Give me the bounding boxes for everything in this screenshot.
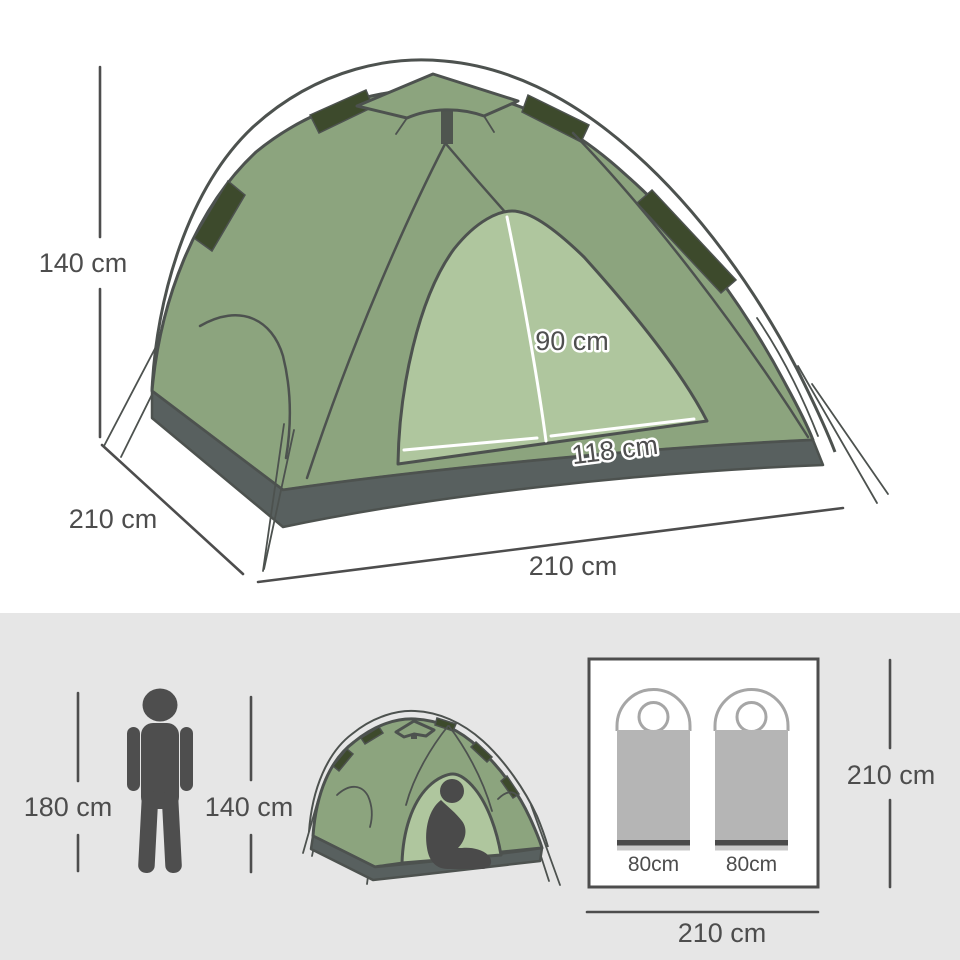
scale-comparison-svg: 180 cm 140 cm: [0, 613, 960, 960]
sleeping-bag-width-label: 80cm: [726, 853, 777, 876]
floor-width-label: 210 cm: [678, 918, 767, 948]
floor-depth-label: 210 cm: [847, 760, 936, 790]
tent-diagram-svg: 140 cm 210 cm 210 cm: [0, 0, 960, 613]
tent-height-label: 140 cm: [39, 248, 128, 278]
small-tent-illustration: [303, 711, 560, 885]
sleeping-bag-icon: 80cm: [715, 690, 788, 877]
scale-comparison-panel: 180 cm 140 cm: [0, 613, 960, 960]
floor-depth-dimension: 210 cm: [847, 660, 936, 887]
person-height-label: 180 cm: [24, 792, 113, 822]
tent-width-label: 210 cm: [529, 551, 618, 581]
door-height-label: 90 cm: [535, 326, 609, 356]
sleeping-bag-width-label: 80cm: [628, 853, 679, 876]
person-height-dimension: 180 cm: [24, 693, 113, 871]
tent-width-dimension: 210 cm: [258, 508, 843, 582]
floor-plan: 80cm 80cm 210 cm 210 cm: [587, 659, 935, 948]
tent-illustration: 90 cm 118 cm: [104, 60, 888, 571]
tent-height-dimension: 140 cm: [39, 67, 128, 437]
person-icon: [127, 689, 193, 874]
tent-depth-label: 210 cm: [69, 504, 158, 534]
tent-dimensions-panel: 140 cm 210 cm 210 cm: [0, 0, 960, 613]
floor-width-dimension: 210 cm: [587, 912, 818, 948]
small-tent-height-label: 140 cm: [205, 792, 294, 822]
sleeping-bag-icon: 80cm: [617, 690, 690, 877]
tent-top-cap: [357, 74, 518, 118]
small-tent-height-dimension: 140 cm: [205, 697, 294, 872]
